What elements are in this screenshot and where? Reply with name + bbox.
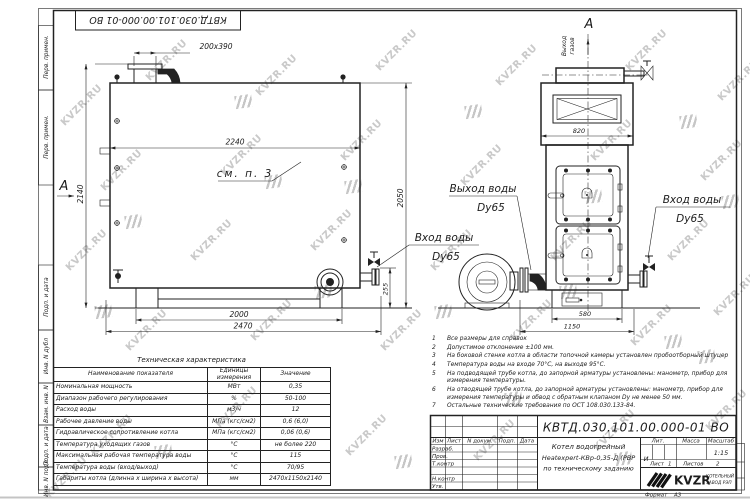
param-unit: °С [208,439,261,451]
note-item: 2Допустимое отклонение ±100 мм. [432,345,735,353]
front-view [438,34,700,312]
lit-header: Лит. [651,439,665,445]
table-row: Максимальная рабочая температура воды°С1… [54,451,331,463]
param-value: 0,06 (0,6) [261,428,331,440]
margin-label-6: Инв. N подл [44,460,50,497]
note-text: На подводящей трубе котла, до запорной а… [447,371,735,386]
lit-value: И [644,455,649,463]
sig-header-data: Дата [519,439,535,445]
param-name: Габариты котла (длинна х ширина х высота… [54,474,208,486]
table-row: Номинальная мощностьМВт0,35 [54,382,331,394]
table-row: Температура воды (вход/выход)°С70/95 [54,462,331,474]
side-view [98,64,412,308]
table-row: Гидравлическое сопротивление котлаМПа (к… [54,428,331,440]
drawing-sheet: KVZR.RUKVZR.RUKVZR.RUKVZR.RUKVZR.RUKVZR.… [0,0,750,500]
dim-full-length: 2470 [233,322,252,331]
table-row: Диапазон рабочего регулирования%50-100 [54,393,331,405]
sig-row-4: Н.контр [432,477,455,483]
col-header: Наименование показателя [54,368,208,382]
table-row: Расход водым3/ч12 [54,405,331,417]
annotations: А А Выход газов см. п. 3 Выход воды Dy65… [57,17,730,270]
param-value: 0,35 [261,382,331,394]
note-number: 5 [432,371,447,386]
furnace-door [548,166,622,224]
wall-fittings [100,118,347,243]
water-out-line1: Выход воды [450,183,517,195]
note-item: 7Остальные технические требования по ОСТ… [432,403,735,411]
note-number: 3 [432,353,447,361]
param-value: 50-100 [261,393,331,405]
title-block: КВТД.030.101.00.000-01 ВО Изм Лист N док… [431,416,737,499]
top-inverted-stamp: КВТД.030.101.00.000-01 ВО [76,11,241,31]
param-value: 0,6 (6,0) [261,416,331,428]
side-water-inlet [360,252,380,285]
param-name: Рабочее давление воды [54,416,208,428]
param-name: Гидравлическое сопротивление котла [54,428,208,440]
top-stamp-number: КВТД.030.101.00.000-01 ВО [89,14,227,25]
front-water-inlet [628,256,655,287]
note-item: 3На боковой стенке котла в области топоч… [432,353,735,361]
col-header: Единицы измерения [208,368,261,382]
param-unit: МПа (кгс/см2) [208,428,261,440]
water-in-right-line2: Dy65 [676,213,704,225]
fan [459,254,546,310]
param-unit: м3/ч [208,405,261,417]
table-row: Температура уходящих газов°Сне более 220 [54,439,331,451]
water-out-line2: Dy65 [477,202,505,214]
table-header-row: Наименование показателя Единицы измерени… [54,368,331,382]
param-name: Температура воды (вход/выход) [54,462,208,474]
note-text: Температура воды на входе 70°С, на выход… [447,362,735,370]
param-unit: °С [208,462,261,474]
tech-table-title: Техническая характеристика [53,356,330,367]
param-unit: МВт [208,382,261,394]
scale-value: 1:15 [714,449,729,457]
param-value: 70/95 [261,462,331,474]
param-name: Диапазон рабочего регулирования [54,393,208,405]
dim-height-left: 2140 [76,184,85,203]
note-number: 1 [432,336,447,344]
dim-duct: 200x390 [199,42,232,51]
sig-row-0: Разраб. [432,447,454,453]
format-label: Формат [645,493,668,499]
flue-elbow [158,69,180,83]
dim-height-right: 2050 [396,188,405,207]
sig-header-podp: Подп. [499,439,516,445]
ash-door [548,226,622,284]
param-unit: °С [208,451,261,463]
param-unit: % [208,393,261,405]
note-text: Все размеры для справок [447,336,735,344]
sheet-value: 1 [668,462,672,468]
margin-label-0: Перв. примен. [44,35,50,79]
sheet-label: Лист [649,462,665,468]
note-item: 5На подводящей трубе котла, до запорной … [432,371,735,386]
gas-outlet-label-2: газов [569,37,576,55]
water-in-left-line1: Вход воды [415,232,474,244]
col-header: Значение [261,368,331,382]
param-value: не более 220 [261,439,331,451]
explosion-window [553,95,621,123]
water-in-left-line2: Dy65 [432,251,460,263]
dim-front-width: 820 [573,127,585,135]
note-number: 2 [432,345,447,353]
note-text: Допустимое отклонение ±100 мм. [447,345,735,353]
param-value: 115 [261,451,331,463]
note-number: 4 [432,362,447,370]
sheets-label: Листов [682,462,704,468]
mass-header: Масса [682,439,700,445]
margin-label-5: Подп. и дата [44,426,50,466]
dim-base-width: 580 [579,310,591,318]
sig-row-5: Утв. [432,484,444,490]
company-sub1: КОТЕЛЬНЫЙ [706,473,735,480]
margin-label-2: Подп. и дата [44,277,50,317]
param-value: 12 [261,405,331,417]
sight-glass [317,269,343,295]
note-number: 6 [432,387,447,402]
margin-label-4: Взам. инв. N [44,385,50,423]
scale-header: Масштаб [708,439,735,445]
note-number: 7 [432,403,447,411]
param-name: Расход воды [54,405,208,417]
gas-outlet-label-1: Выход [561,36,568,56]
format-value: А3 [673,493,682,499]
sig-header-doc: N докум. [467,439,493,445]
note-text: На отводящей трубе котла, до запорной ар… [447,387,735,402]
sig-header-list: Лист [446,439,462,445]
sig-header-izm: Изм [432,439,443,445]
table-row: Габариты котла (длинна х ширина х высота… [54,474,331,486]
sig-row-1: Пров. [432,454,448,460]
doc-number: КВТД.030.101.00.000-01 ВО [543,421,729,435]
note-item: 6На отводящей трубе котла, до запорной а… [432,387,735,402]
param-name: Номинальная мощность [54,382,208,394]
tb-title-line2: Heatexpert-КВр-0,35-Д (РВР [542,454,635,462]
dim-length-inner: 2240 [225,138,244,147]
table-row: Рабочее давление водыМПа (кгс/см2)0,6 (6… [54,416,331,428]
margin-label-1: Перв. примен. [44,115,50,159]
see-note-label: см. п. 3 [217,168,274,180]
margin-label-3: Инв. N дубл [44,338,50,374]
section-a-left: А [59,179,69,194]
param-value: 2470х1150х2140 [261,474,331,486]
param-name: Максимальная рабочая температура воды [54,451,208,463]
note-text: Остальные технические требования по ОСТ … [447,403,735,411]
note-item: 4Температура воды на входе 70°С, на выхо… [432,362,735,370]
param-name: Температура уходящих газов [54,439,208,451]
dim-full-width: 1150 [564,323,581,331]
dim-inlet-height: 255 [382,283,390,295]
dimensions: 200x390 2240 2140 2050 255 2000 [76,42,634,335]
water-in-right-line1: Вход воды [663,194,722,206]
company-sub2: ЗАВОД РЭП [706,480,732,486]
param-unit: МПа (кгс/см2) [208,416,261,428]
tb-title-line1: Котел водогрейный [552,443,626,451]
param-unit: мм [208,474,261,486]
note-text: На боковой стенке котла в области топочн… [447,353,735,361]
sig-row-2: Т.контр [432,462,455,468]
tech-table: Техническая характеристика Наименование … [53,356,330,486]
notes-list: 1Все размеры для справок 2Допустимое отк… [432,336,735,412]
kvzr-logo-icon [648,473,671,488]
sheets-value: 2 [716,462,720,468]
section-a-top: А [584,17,594,32]
dim-base-length: 2000 [229,310,248,319]
tb-title-line3: по техническому заданию [543,465,634,473]
note-item: 1Все размеры для справок [432,336,735,344]
tech-table-grid: Наименование показателя Единицы измерени… [53,367,331,486]
margin-column: Перв. примен. Перв. примен. Подп. и дата… [39,26,54,497]
